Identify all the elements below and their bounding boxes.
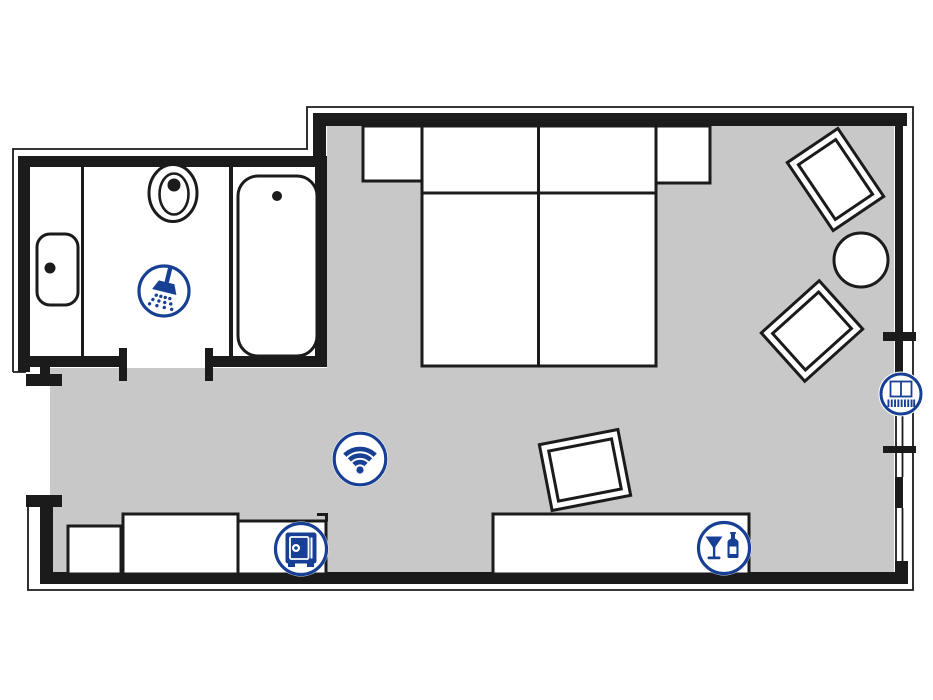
floor-plan <box>0 0 933 700</box>
wifi-icon-ring <box>334 433 386 485</box>
wall-right-mid <box>895 477 903 508</box>
bathroom <box>37 165 317 357</box>
french-balcony-glyph <box>888 382 916 408</box>
toilet <box>149 165 197 222</box>
shower-icon <box>137 264 192 319</box>
bathroom-door-post-right <box>205 348 213 381</box>
wall-top-main <box>313 113 907 126</box>
bench <box>68 526 121 574</box>
wall-left-bathroom <box>18 156 30 372</box>
double-bed <box>422 126 656 366</box>
wall-left-lower <box>40 505 53 578</box>
minibar-icon <box>697 521 752 576</box>
bathtub-drain <box>272 191 282 201</box>
window-tick-1 <box>883 332 916 341</box>
safe-glyph <box>286 533 317 568</box>
nightstand-right <box>655 126 710 183</box>
toilet-drain <box>168 179 181 192</box>
washbasin-drain <box>45 263 56 274</box>
bathroom-partition <box>229 164 233 358</box>
vanity-counter-edge <box>81 167 84 357</box>
washbasin-bowl <box>37 234 78 305</box>
round-table <box>834 233 888 287</box>
entry-door-jamb-top <box>26 374 62 386</box>
bathtub <box>238 176 317 356</box>
lounge-chair-seat <box>549 439 622 501</box>
washbasin <box>37 234 78 305</box>
minibar-icon-ring <box>699 523 750 574</box>
window-tick-2 <box>883 446 916 453</box>
wall-right-corner <box>895 561 908 584</box>
nightstand-left <box>363 126 422 181</box>
floor-plan-page <box>0 0 933 700</box>
wall-bathroom-bottom-left <box>18 356 127 367</box>
lounge-chair <box>539 429 630 510</box>
bathroom-door-post-left <box>119 348 127 381</box>
bathtub-body <box>238 176 317 356</box>
french-balcony-icon <box>879 372 924 417</box>
safe-icon <box>274 522 329 577</box>
wifi-icon <box>332 431 388 487</box>
cabinet <box>123 514 238 574</box>
